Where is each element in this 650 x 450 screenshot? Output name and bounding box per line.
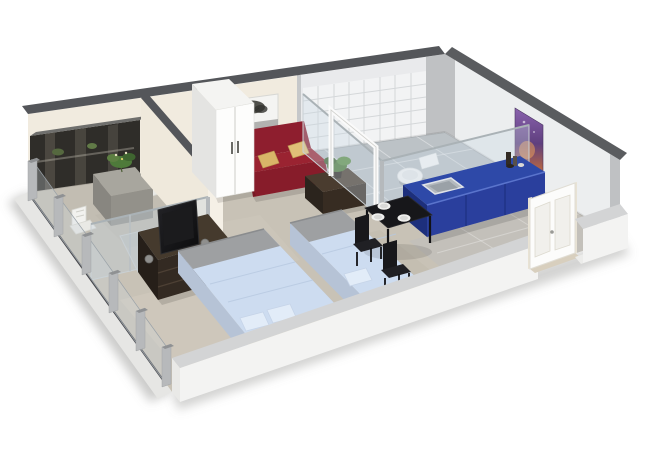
pilaster (426, 54, 445, 135)
shelf-plant (52, 149, 64, 156)
floor-plan-svg (0, 0, 650, 450)
door-panel (555, 195, 570, 250)
floor-plan-render (0, 0, 650, 450)
pilaster (445, 54, 455, 138)
door-handle (550, 230, 554, 234)
shelf-plant (87, 143, 97, 149)
purple-art-star (523, 121, 526, 124)
door-panel (535, 202, 550, 257)
purple-art-star (533, 131, 535, 133)
speaker-knob (145, 255, 153, 263)
tree-crown (255, 105, 268, 113)
